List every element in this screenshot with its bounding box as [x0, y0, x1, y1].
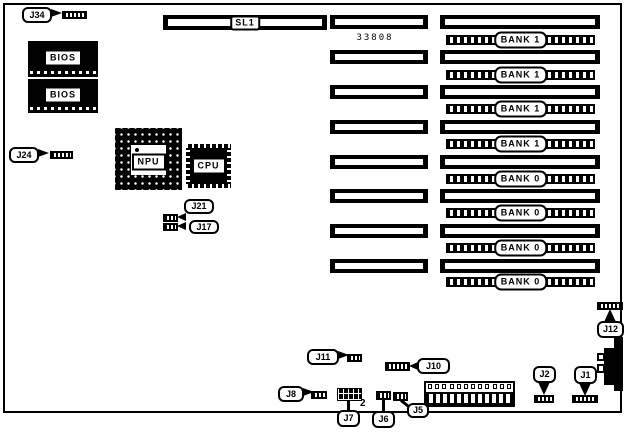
- keyboard-connector-bump-2: [597, 364, 605, 373]
- j17-jumper: [163, 223, 178, 231]
- j12-callout-label: J12: [597, 321, 624, 338]
- bank-label: BANK 1: [494, 136, 548, 153]
- cpu-label: CPU: [191, 158, 225, 175]
- power-connector-pads: [426, 383, 513, 389]
- expansion-slot-right-1: [440, 15, 600, 29]
- npu-pin1-dot: [135, 148, 139, 152]
- j6-callout-label: J6: [372, 411, 395, 428]
- j1-callout-label: J1: [574, 366, 597, 384]
- sl1-slot-label: SL1: [230, 15, 260, 30]
- expansion-slot-right-2: [440, 50, 600, 64]
- simm-bank-row-1: BANK 1: [446, 35, 595, 45]
- npu-label: NPU: [131, 153, 165, 170]
- expansion-slot-mid-1: [330, 15, 428, 29]
- j34-jumper: [62, 11, 87, 19]
- expansion-slot-mid-4: [330, 120, 428, 134]
- bios-chip-1-label: BIOS: [44, 49, 82, 66]
- bios-chip-1-socket-line: [30, 71, 96, 74]
- j11-callout-tail: [338, 351, 349, 359]
- j8-callout-tail: [303, 388, 314, 396]
- bank-label: BANK 0: [494, 205, 548, 222]
- expansion-slot-right-5: [440, 155, 600, 169]
- keyboard-connector-top: [614, 337, 623, 348]
- j1-callout-tail: [579, 383, 591, 396]
- expansion-slot-right-6: [440, 189, 600, 203]
- j8-callout-label: J8: [278, 386, 304, 402]
- j2-callout-label: J2: [533, 366, 556, 383]
- j21-callout-tail: [177, 213, 186, 221]
- j10-jumper: [385, 362, 410, 371]
- bank-label: BANK 0: [494, 171, 548, 188]
- j2-callout-tail: [538, 382, 550, 395]
- simm-bank-row-6: BANK 0: [446, 208, 595, 218]
- bank-label: BANK 1: [494, 32, 548, 49]
- simm-bank-row-8: BANK 0: [446, 277, 595, 287]
- bank-label: BANK 0: [494, 240, 548, 257]
- simm-bank-row-4: BANK 1: [446, 139, 595, 149]
- board-part-number: 33808: [352, 33, 398, 43]
- power-connector: [424, 381, 515, 407]
- bios-chip-1: BIOS: [28, 41, 98, 77]
- j7-callout-label: J7: [337, 410, 360, 427]
- j11-jumper: [347, 354, 362, 362]
- cpu-chip: CPU: [186, 144, 231, 188]
- expansion-slot-right-3: [440, 85, 600, 99]
- keyboard-connector-bump-1: [597, 353, 605, 361]
- expansion-slot-right-4: [440, 120, 600, 134]
- j11-callout-label: J11: [307, 349, 339, 365]
- bios-chip-2: BIOS: [28, 79, 98, 113]
- expansion-slot-mid-2: [330, 50, 428, 64]
- j7-pin-header: [337, 388, 362, 401]
- expansion-slot-right-8: [440, 259, 600, 273]
- j24-callout-label: J24: [9, 147, 39, 163]
- j6-jumper: [376, 391, 391, 400]
- expansion-slot-mid-3: [330, 85, 428, 99]
- bios-chip-2-socket-line: [30, 107, 96, 110]
- j2-jumper: [534, 395, 554, 403]
- simm-bank-row-2: BANK 1: [446, 70, 595, 80]
- j24-callout-tail: [38, 149, 49, 157]
- simm-bank-row-7: BANK 0: [446, 243, 595, 253]
- expansion-slot-mid-7: [330, 224, 428, 238]
- j34-callout-label: J34: [22, 7, 52, 23]
- bank-label: BANK 0: [494, 274, 548, 291]
- expansion-slot-mid-8: [330, 259, 428, 273]
- bank-label: BANK 1: [494, 101, 548, 118]
- j17-callout-tail: [177, 222, 186, 230]
- j21-callout-label: J21: [184, 199, 214, 214]
- keyboard-connector-bottom: [614, 385, 623, 391]
- expansion-slot-mid-6: [330, 189, 428, 203]
- j17-callout-label: J17: [189, 220, 219, 234]
- j7-pin2-marker: 2: [360, 398, 366, 409]
- expansion-slot-mid-5: [330, 155, 428, 169]
- npu-socket-inner: NPU: [131, 145, 166, 175]
- bios-chip-2-label: BIOS: [44, 86, 82, 103]
- j10-callout-label: J10: [417, 358, 450, 374]
- j34-callout-tail: [51, 9, 62, 17]
- npu-socket: NPU: [115, 128, 182, 190]
- bank-label: BANK 1: [494, 67, 548, 84]
- j21-jumper: [163, 214, 178, 222]
- simm-bank-row-5: BANK 0: [446, 174, 595, 184]
- simm-bank-row-3: BANK 1: [446, 104, 595, 114]
- power-connector-pins: [426, 392, 513, 405]
- keyboard-connector-body: [604, 348, 623, 385]
- motherboard-diagram: J34 BIOS BIOS J24 NPU CPU J21 J17 SL1: [0, 0, 627, 436]
- j5-callout-label: J5: [407, 403, 429, 418]
- sl1-slot: SL1: [163, 15, 327, 30]
- j1-jumper: [572, 395, 598, 403]
- j24-jumper: [50, 151, 73, 159]
- expansion-slot-right-7: [440, 224, 600, 238]
